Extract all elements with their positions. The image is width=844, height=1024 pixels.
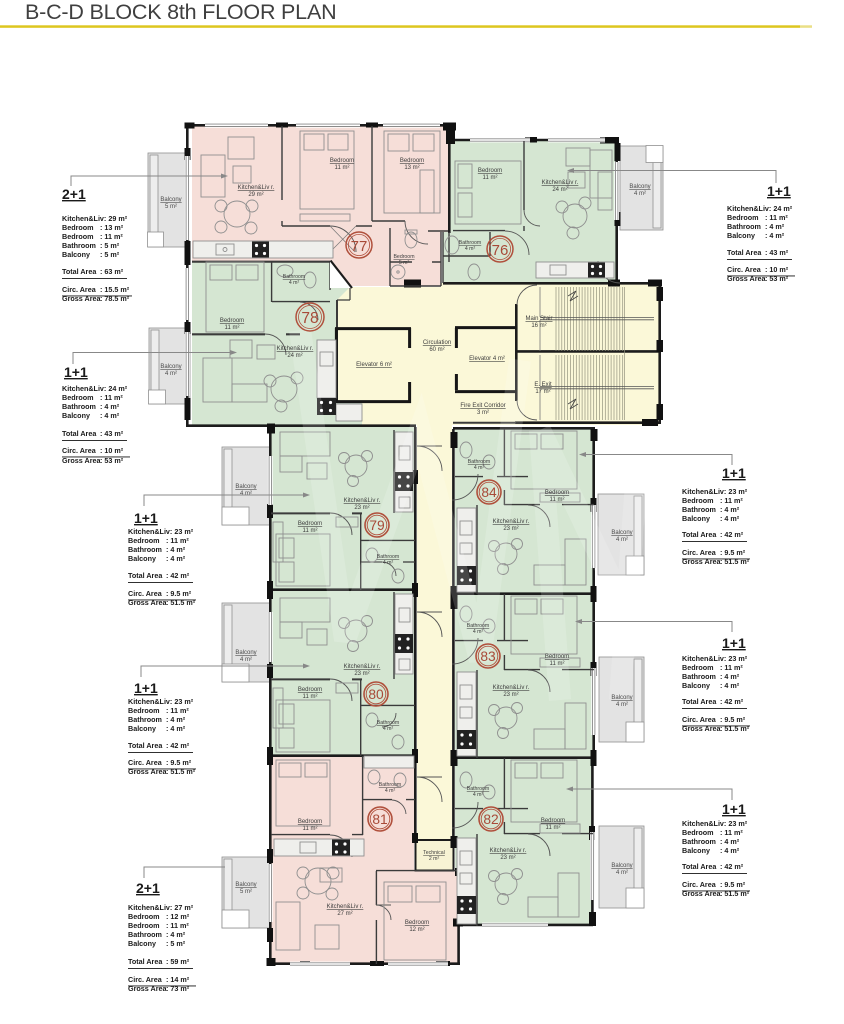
svg-text:: 4 m²: : 4 m² [765,222,785,231]
svg-text:: 42 m²: : 42 m² [720,697,744,706]
svg-text:: 4 m²: : 4 m² [100,411,120,420]
svg-text:2+1: 2+1 [62,186,86,202]
svg-text:: 11 m²: : 11 m² [166,921,189,930]
svg-text:1+1: 1+1 [722,801,746,817]
svg-text:Bedroom: Bedroom [545,654,569,660]
svg-text:83: 83 [480,649,496,664]
svg-text:: 5 m²: : 5 m² [166,939,186,948]
svg-text:: 51.5 m²: : 51.5 m² [720,557,750,566]
svg-text:29 m²: 29 m² [248,192,263,198]
svg-text:Balcony: Balcony [235,650,256,656]
svg-text:: 11 m²: : 11 m² [166,706,189,715]
svg-text:Kitchen&Liv r.: Kitchen&Liv r. [344,498,381,504]
svg-text:11 m²: 11 m² [546,825,561,831]
svg-text:1+1: 1+1 [64,364,88,380]
svg-text:Balcony: Balcony [128,724,156,733]
svg-text:Circulation: Circulation [423,340,451,346]
svg-text:: 4 m²: : 4 m² [166,724,186,733]
svg-text:Total Area: Total Area [128,957,163,966]
svg-text:Bedroom: Bedroom [128,536,160,545]
svg-text:Circ. Area: Circ. Area [128,589,163,598]
svg-text:4 m²: 4 m² [289,280,300,286]
svg-text:: 4 m²: : 4 m² [720,672,740,681]
svg-text:Balcony: Balcony [611,695,632,701]
svg-text:Kitchen&Liv: 23 m²: Kitchen&Liv: 23 m² [682,654,748,663]
svg-text:: 12 m²: : 12 m² [166,912,190,921]
svg-text:: 10 m²: : 10 m² [100,446,124,455]
svg-text:Kitchen&Liv r.: Kitchen&Liv r. [344,664,381,670]
svg-text:: 11 m²: : 11 m² [720,496,743,505]
svg-text:: 73 m²: : 73 m² [166,984,190,993]
svg-text:Gross Area: Gross Area [128,767,167,776]
svg-text:2 m²: 2 m² [429,856,440,862]
svg-text:4 m²: 4 m² [165,371,177,377]
svg-text:Kitchen&Liv r.: Kitchen&Liv r. [238,185,275,191]
svg-text:Circ. Area: Circ. Area [128,758,163,767]
svg-text:Elevator 4 m²: Elevator 4 m² [469,356,505,362]
svg-text:13 m²: 13 m² [404,165,419,171]
svg-text:76: 76 [492,242,509,259]
svg-text:Circ. Area: Circ. Area [682,548,717,557]
svg-text:: 43 m²: : 43 m² [765,248,789,257]
svg-text:: 13 m²: : 13 m² [100,223,124,232]
svg-text:: 10 m²: : 10 m² [765,265,789,274]
svg-text:17 m²: 17 m² [535,389,550,395]
svg-text:: 11 m²: : 11 m² [100,232,123,241]
svg-text:: 15.5 m²: : 15.5 m² [100,285,130,294]
svg-text:11 m²: 11 m² [303,694,318,700]
svg-text:Bedroom: Bedroom [62,393,94,402]
svg-text:Gross Area: Gross Area [682,724,721,733]
svg-text:Total Area: Total Area [682,697,717,706]
svg-text:Total Area: Total Area [682,530,717,539]
svg-text:: 78.5 m²: : 78.5 m² [100,294,130,303]
svg-text:5 m²: 5 m² [240,889,252,895]
svg-text:: 14 m²: : 14 m² [166,975,190,984]
svg-text:Bathroom: Bathroom [62,241,96,250]
svg-text:60 m²: 60 m² [429,347,444,353]
svg-text:: 51.5 m²: : 51.5 m² [720,889,750,898]
svg-text:11 m²: 11 m² [225,325,240,331]
svg-text:Bathroom: Bathroom [128,715,162,724]
svg-text:4 m²: 4 m² [634,191,646,197]
svg-text:Bedroom: Bedroom [545,490,569,496]
svg-text:11 m²: 11 m² [550,661,565,667]
svg-text:11 m²: 11 m² [335,165,350,171]
svg-text:Kitchen&Liv r.: Kitchen&Liv r. [493,519,530,525]
svg-text:4 m²: 4 m² [240,657,252,663]
svg-text:Fire Exit Corridor: Fire Exit Corridor [460,403,505,409]
svg-text:: 51.5 m²: : 51.5 m² [166,767,196,776]
svg-text:: 11 m²: : 11 m² [720,828,743,837]
svg-text:: 11 m²: : 11 m² [100,393,123,402]
svg-text:Bedroom: Bedroom [682,828,714,837]
svg-text:77: 77 [351,238,368,255]
svg-text:Balcony: Balcony [611,530,632,536]
svg-text:23 m²: 23 m² [500,855,515,861]
svg-text:Circ. Area: Circ. Area [128,975,163,984]
svg-text:4 m²: 4 m² [474,465,485,471]
svg-text:12 m²: 12 m² [409,927,424,933]
svg-text:: 42 m²: : 42 m² [166,571,190,580]
svg-text:Kitchen&Liv r.: Kitchen&Liv r. [542,180,579,186]
svg-text:81: 81 [372,812,387,827]
svg-text:Bathroom: Bathroom [128,545,162,554]
svg-text:Bedroom: Bedroom [405,920,429,926]
svg-text:3 m²: 3 m² [477,410,489,416]
svg-text:Balcony: Balcony [128,554,156,563]
svg-text:Balcony: Balcony [629,184,650,190]
svg-text:: 4 m²: : 4 m² [166,554,186,563]
svg-text:Balcony: Balcony [611,863,632,869]
svg-text:Bedroom: Bedroom [478,168,502,174]
svg-text:Bathroom: Bathroom [128,930,162,939]
svg-text:Circ. Area: Circ. Area [682,880,717,889]
svg-text:80: 80 [368,687,384,702]
svg-text:Bedroom: Bedroom [727,213,759,222]
svg-text:4 m²: 4 m² [473,629,484,635]
svg-text:Main Stair: Main Stair [525,316,552,322]
svg-text:Bedroom: Bedroom [541,818,565,824]
svg-text:Balcony: Balcony [128,939,156,948]
svg-text:1+1: 1+1 [767,183,791,199]
svg-text:Elevator 6 m²: Elevator 6 m² [356,362,392,368]
svg-text:: 51.5 m²: : 51.5 m² [720,724,750,733]
svg-text:79: 79 [369,518,385,533]
svg-text:11 m²: 11 m² [483,175,498,181]
svg-text:24 m²: 24 m² [287,353,302,359]
svg-text:Kitchen&Liv r.: Kitchen&Liv r. [327,904,364,910]
svg-text:Total Area: Total Area [62,429,97,438]
svg-text:23 m²: 23 m² [354,671,369,677]
svg-text:4 m²: 4 m² [465,246,476,252]
svg-text:Balcony: Balcony [682,681,710,690]
svg-text:Bedroom: Bedroom [62,232,94,241]
svg-text:4 m²: 4 m² [240,491,252,497]
svg-text:: 11 m²: : 11 m² [720,663,743,672]
svg-text:Bedroom: Bedroom [330,158,354,164]
svg-text:: 42 m²: : 42 m² [166,741,190,750]
svg-text:: 9.5 m²: : 9.5 m² [166,758,192,767]
svg-text:16 m²: 16 m² [531,323,546,329]
svg-text:Gross Area: Gross Area [128,984,167,993]
svg-text:: 51.5 m²: : 51.5 m² [166,598,196,607]
svg-text:Bedroom: Bedroom [400,158,424,164]
svg-text:Kitchen&Liv: 24 m²: Kitchen&Liv: 24 m² [62,384,128,393]
svg-text:: 59 m²: : 59 m² [166,957,190,966]
svg-text:: 9.5 m²: : 9.5 m² [166,589,192,598]
svg-text:27 m²: 27 m² [337,911,352,917]
svg-text:: 4 m²: : 4 m² [166,715,186,724]
svg-text:Bedroom: Bedroom [682,663,714,672]
svg-text:Total Area: Total Area [682,862,717,871]
svg-text:Circ. Area: Circ. Area [62,285,97,294]
svg-text:Total Area: Total Area [128,571,163,580]
svg-text:Kitchen&Liv r.: Kitchen&Liv r. [490,848,527,854]
svg-text:: 42 m²: : 42 m² [720,862,744,871]
svg-text:: 4 m²: : 4 m² [720,681,740,690]
svg-text:Gross Area: Gross Area [682,889,721,898]
svg-text:: 4 m²: : 4 m² [720,514,740,523]
svg-text:: 4 m²: : 4 m² [720,846,740,855]
svg-text:Balcony: Balcony [235,484,256,490]
svg-text:4 m²: 4 m² [385,788,396,794]
svg-text:11 m²: 11 m² [303,528,318,534]
svg-text:Gross Area: Gross Area [727,274,766,283]
svg-text:Kitchen&Liv: 27 m²: Kitchen&Liv: 27 m² [128,903,194,912]
svg-text:1+1: 1+1 [722,465,746,481]
svg-text:78: 78 [301,310,318,327]
svg-text:82: 82 [483,812,498,827]
svg-text:: 9.5 m²: : 9.5 m² [720,715,746,724]
svg-text:Balcony: Balcony [682,846,710,855]
svg-text:Kitchen&Liv: 23 m²: Kitchen&Liv: 23 m² [682,819,748,828]
svg-text:Bedroom: Bedroom [220,318,244,324]
svg-text:Kitchen&Liv: 29 m²: Kitchen&Liv: 29 m² [62,214,128,223]
svg-text:Bathroom: Bathroom [62,402,96,411]
svg-text:Kitchen&Liv: 23 m²: Kitchen&Liv: 23 m² [128,527,194,536]
svg-text:4 m²: 4 m² [473,792,484,798]
svg-text:E. Exit: E. Exit [534,382,552,388]
svg-text:Kitchen&Liv: 24 m²: Kitchen&Liv: 24 m² [727,204,793,213]
svg-text:11 m²: 11 m² [550,497,565,503]
svg-text:Total Area: Total Area [62,267,97,276]
svg-text:Circ. Area: Circ. Area [682,715,717,724]
svg-text:: 11 m²: : 11 m² [765,213,788,222]
svg-text:Balcony: Balcony [160,197,181,203]
svg-text:5 m²: 5 m² [165,204,177,210]
svg-text:: 4 m²: : 4 m² [720,837,740,846]
svg-text:: 4 m²: : 4 m² [720,505,740,514]
svg-text:Gross Area: Gross Area [128,598,167,607]
svg-text:: 4 m²: : 4 m² [100,402,120,411]
svg-text:Bathroom: Bathroom [682,505,716,514]
svg-text:1+1: 1+1 [134,680,158,696]
svg-text:Total Area: Total Area [128,741,163,750]
svg-text:4 m²: 4 m² [616,702,628,708]
svg-text:4 m²: 4 m² [616,537,628,543]
svg-text:4 m²: 4 m² [383,726,394,732]
svg-text:Bedroom: Bedroom [128,912,160,921]
svg-text:Circ. Area: Circ. Area [62,446,97,455]
svg-text:: 63 m²: : 63 m² [100,267,124,276]
svg-text:1+1: 1+1 [722,635,746,651]
svg-text:4 m²: 4 m² [616,870,628,876]
svg-text:: 4 m²: : 4 m² [166,930,186,939]
svg-text:Bedroom: Bedroom [298,687,322,693]
svg-text:Bedroom: Bedroom [298,819,322,825]
svg-text:Balcony: Balcony [235,882,256,888]
svg-text:1+1: 1+1 [134,510,158,526]
svg-text:23 m²: 23 m² [503,526,518,532]
svg-text:23 m²: 23 m² [354,505,369,511]
svg-text:Gross Area: Gross Area [62,294,101,303]
svg-text:Total Area: Total Area [727,248,762,257]
svg-text:Balcony: Balcony [62,411,90,420]
svg-text:Bedroom: Bedroom [62,223,94,232]
svg-text:Gross Area: Gross Area [62,456,101,465]
svg-text:: 5 m²: : 5 m² [100,250,120,259]
svg-text:Bedroom: Bedroom [682,496,714,505]
svg-text:Balcony: Balcony [727,231,755,240]
svg-text:Balcony: Balcony [160,364,181,370]
svg-text:4 m²: 4 m² [383,560,394,566]
svg-text:Bedroom: Bedroom [298,521,322,527]
svg-text:: 43 m²: : 43 m² [100,429,124,438]
svg-text:Kitchen&Liv: 23 m²: Kitchen&Liv: 23 m² [682,487,748,496]
svg-text:Bathroom: Bathroom [682,672,716,681]
svg-text:Bathroom: Bathroom [727,222,761,231]
svg-text:Bathroom: Bathroom [682,837,716,846]
svg-text:23 m²: 23 m² [503,692,518,698]
svg-text:: 11 m²: : 11 m² [166,536,189,545]
svg-text:: 5 m²: : 5 m² [100,241,120,250]
svg-text:: 4 m²: : 4 m² [166,545,186,554]
svg-text:: 9.5 m²: : 9.5 m² [720,880,746,889]
svg-text:5 m²: 5 m² [399,260,410,266]
svg-text:11 m²: 11 m² [303,826,318,832]
svg-text:Balcony: Balcony [62,250,90,259]
svg-text:Kitchen&Liv r.: Kitchen&Liv r. [493,685,530,691]
svg-text:Balcony: Balcony [682,514,710,523]
svg-text:24 m²: 24 m² [552,187,567,193]
svg-text:Kitchen&Liv r.: Kitchen&Liv r. [277,346,314,352]
svg-text:: 53 m²: : 53 m² [100,456,124,465]
svg-text:Bedroom: Bedroom [128,921,160,930]
svg-text:Kitchen&Liv: 23 m²: Kitchen&Liv: 23 m² [128,697,194,706]
svg-text:Bedroom: Bedroom [128,706,160,715]
svg-text:Gross Area: Gross Area [682,557,721,566]
svg-text:2+1: 2+1 [136,880,160,896]
svg-text:: 53 m²: : 53 m² [765,274,789,283]
svg-text:: 9.5 m²: : 9.5 m² [720,548,746,557]
svg-text:: 4 m²: : 4 m² [765,231,785,240]
svg-text:: 42 m²: : 42 m² [720,530,744,539]
svg-text:Circ. Area: Circ. Area [727,265,762,274]
svg-text:84: 84 [481,485,497,500]
